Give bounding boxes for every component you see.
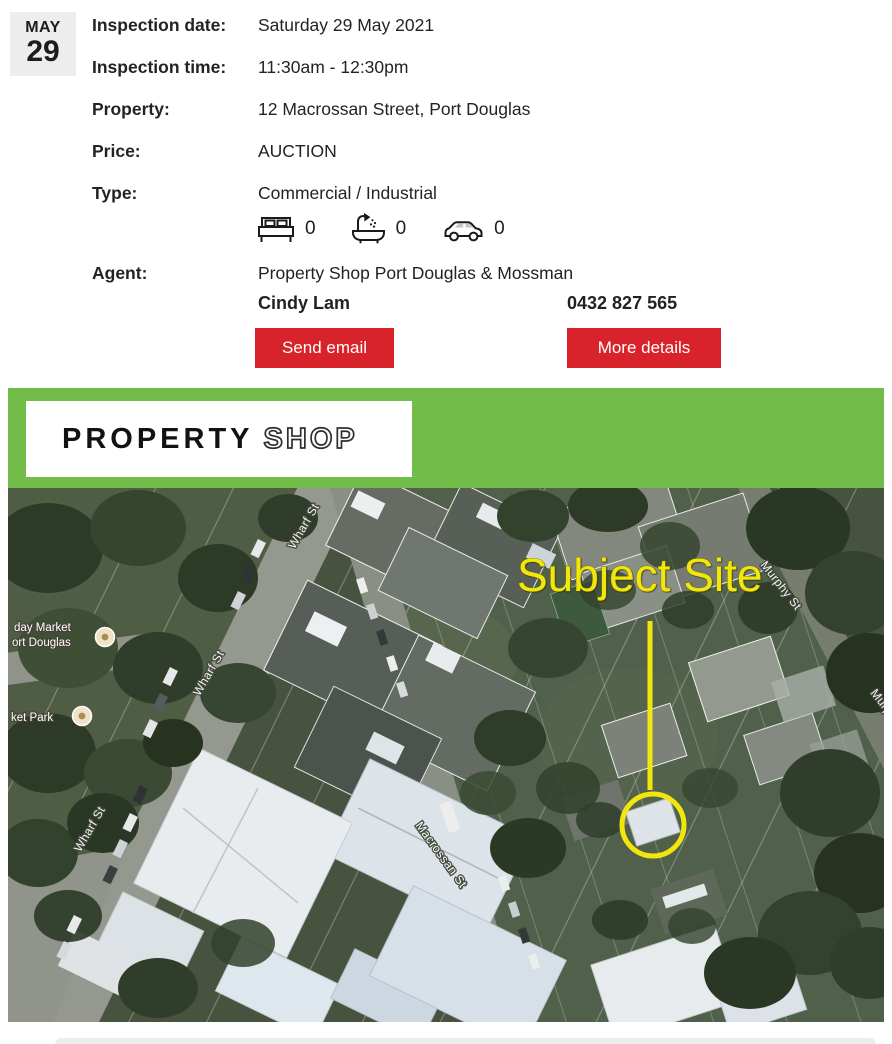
property-row: Property:12 Macrossan Street, Port Dougl…: [92, 98, 530, 120]
inspection-time-value: 11:30am - 12:30pm: [258, 57, 408, 77]
agent-name: Cindy Lam: [258, 293, 350, 314]
subject-site-label: Subject Site: [517, 549, 762, 601]
bath-count: 0: [396, 218, 407, 240]
agency-name: Property Shop Port Douglas & Mossman: [258, 263, 573, 284]
agent-label: Agent:: [92, 263, 147, 284]
more-details-button[interactable]: More details: [567, 328, 721, 368]
inspection-time-row: Inspection time:11:30am - 12:30pm: [92, 56, 408, 78]
inspection-date-row: Inspection date:Saturday 29 May 2021: [92, 14, 434, 36]
car-icon: [442, 216, 485, 243]
bath-icon: [350, 212, 387, 246]
price-label: Price:: [92, 140, 258, 162]
send-email-button[interactable]: Send email: [255, 328, 394, 368]
aerial-map: day Market ort Douglas ket Park Wharf St…: [8, 488, 884, 1022]
price-row: Price:AUCTION: [92, 140, 337, 162]
listing-photo: PROPERTY SHOP: [8, 388, 884, 1022]
agency-banner: PROPERTY SHOP: [8, 388, 884, 488]
bed-icon: [256, 214, 296, 244]
feature-counts: 0 0 0: [256, 211, 505, 247]
date-badge-day: 29: [26, 36, 59, 68]
logo-word-shop: SHOP: [264, 423, 358, 456]
agent-phone: 0432 827 565: [567, 293, 677, 314]
date-badge: MAY 29: [10, 12, 76, 76]
car-count: 0: [494, 218, 505, 240]
bed-count: 0: [305, 218, 316, 240]
poi-park-label: ket Park: [11, 712, 53, 724]
type-label: Type:: [92, 182, 258, 204]
type-value: Commercial / Industrial: [258, 183, 437, 203]
type-row: Type:Commercial / Industrial: [92, 182, 437, 204]
next-card-edge: [55, 1038, 876, 1044]
property-label: Property:: [92, 98, 258, 120]
property-shop-logo: PROPERTY SHOP: [26, 401, 412, 477]
price-value: AUCTION: [258, 141, 337, 161]
poi-market-label-line2: ort Douglas: [12, 637, 71, 649]
inspection-time-label: Inspection time:: [92, 56, 258, 78]
inspection-date-label: Inspection date:: [92, 14, 258, 36]
date-badge-month: MAY: [25, 20, 61, 36]
poi-market-label-line1: day Market: [14, 622, 72, 634]
inspection-date-value: Saturday 29 May 2021: [258, 15, 434, 35]
property-value: 12 Macrossan Street, Port Douglas: [258, 99, 530, 119]
logo-word-property: PROPERTY: [62, 423, 254, 456]
